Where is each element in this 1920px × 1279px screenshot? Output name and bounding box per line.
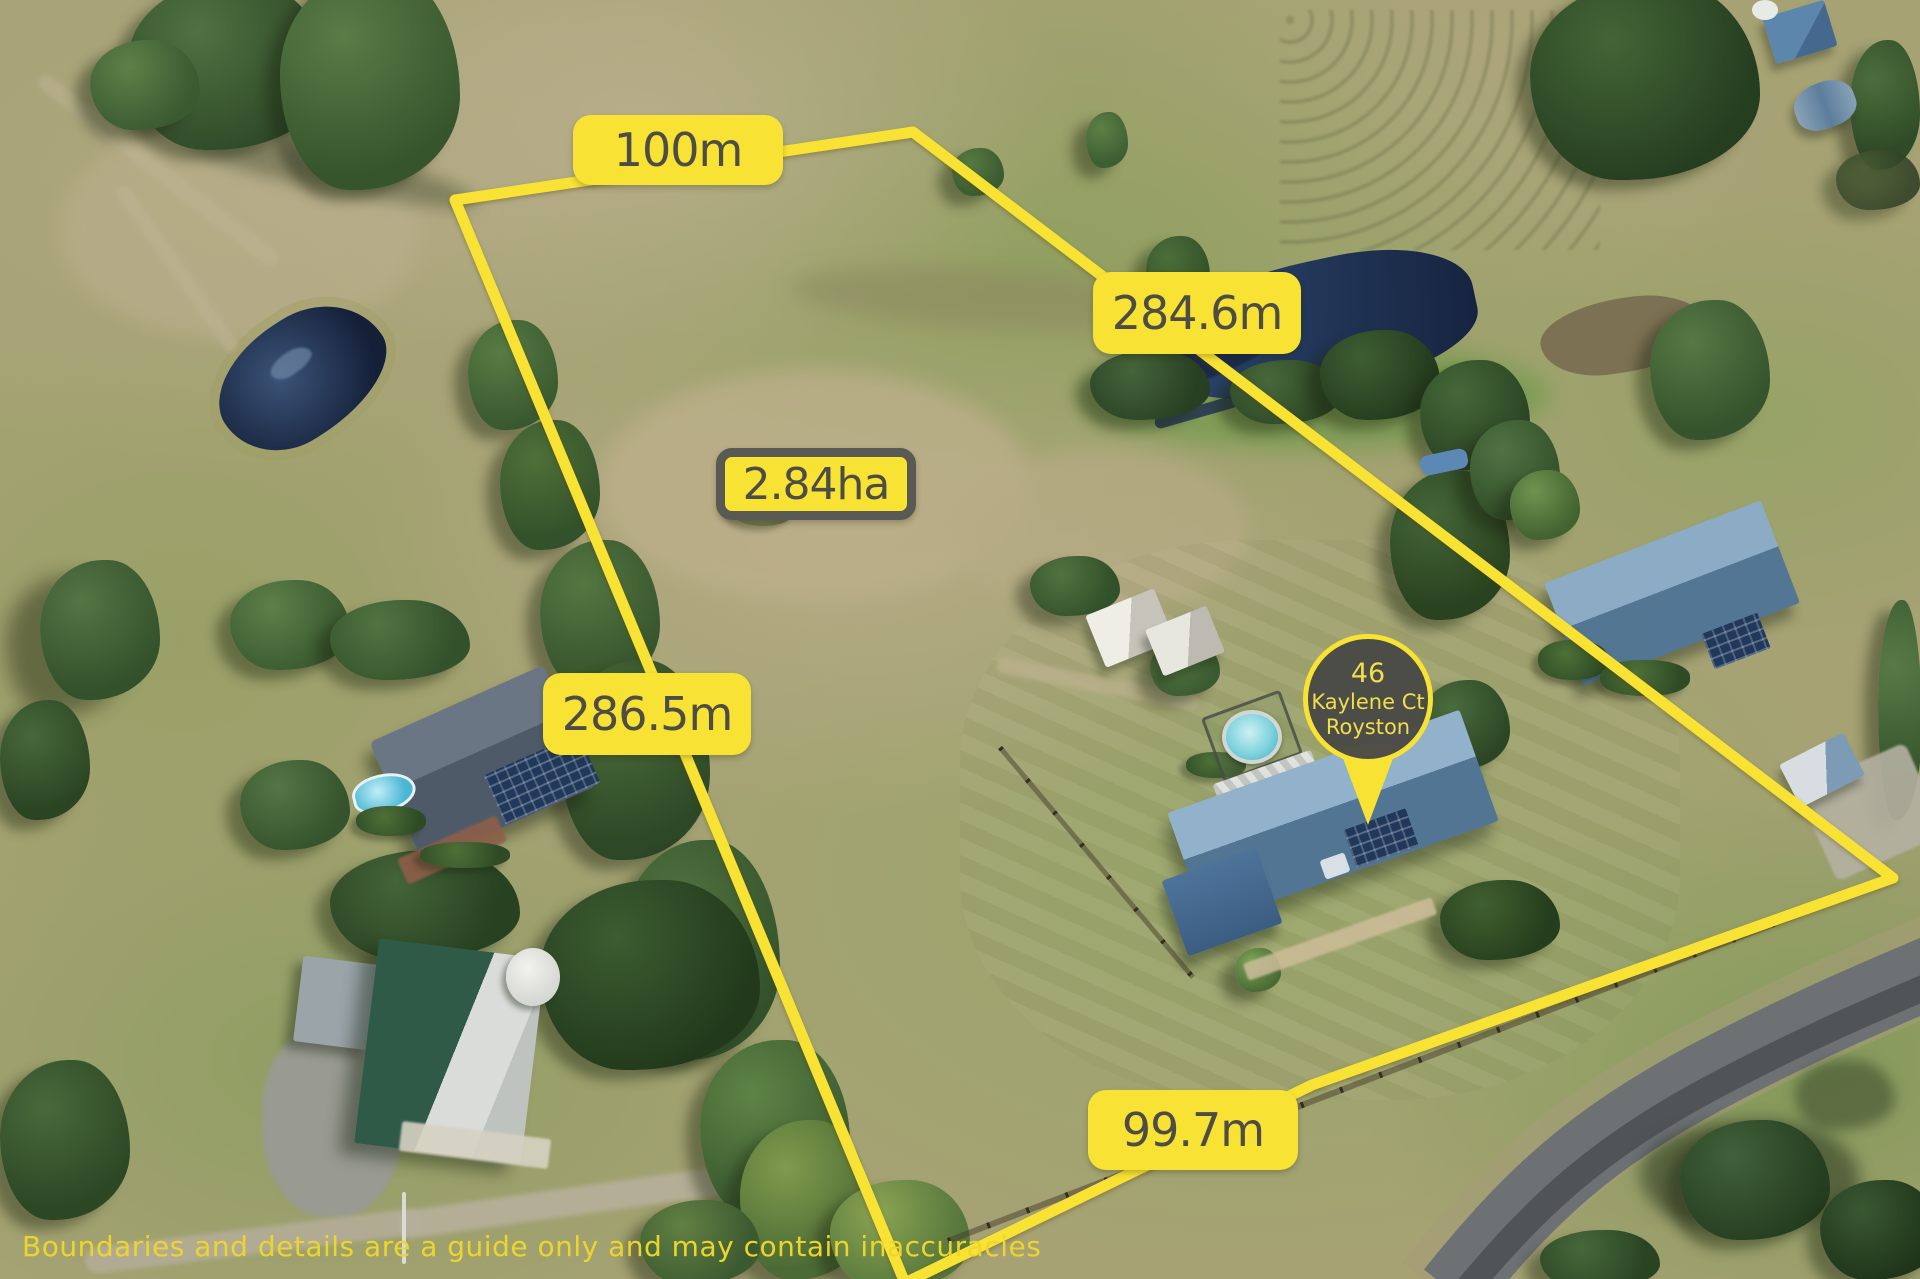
measurement-value: 100m bbox=[614, 123, 743, 177]
marker-street-number: 46 bbox=[1351, 658, 1385, 690]
area-value: 2.84ha bbox=[743, 459, 890, 510]
boundary-overlay bbox=[0, 0, 1920, 1279]
measurement-value: 284.6m bbox=[1112, 286, 1283, 340]
measurement-label-left: 286.5m bbox=[543, 673, 751, 755]
measurement-value: 99.7m bbox=[1122, 1103, 1264, 1157]
measurement-value: 286.5m bbox=[562, 687, 733, 741]
address-marker: 46 Kaylene Ct Royston bbox=[1303, 634, 1433, 764]
area-label: 2.84ha bbox=[716, 448, 916, 520]
marker-street: Kaylene Ct bbox=[1311, 690, 1424, 715]
disclaimer-text: Boundaries and details are a guide only … bbox=[22, 1230, 1041, 1263]
measurement-label-top: 100m bbox=[573, 115, 783, 185]
aerial-property-photo: 100m 284.6m 2.84ha 286.5m 99.7m 46 Kayle… bbox=[0, 0, 1920, 1279]
measurement-label-right: 284.6m bbox=[1093, 272, 1301, 354]
marker-suburb: Royston bbox=[1326, 715, 1410, 740]
measurement-label-bottom: 99.7m bbox=[1088, 1090, 1298, 1170]
